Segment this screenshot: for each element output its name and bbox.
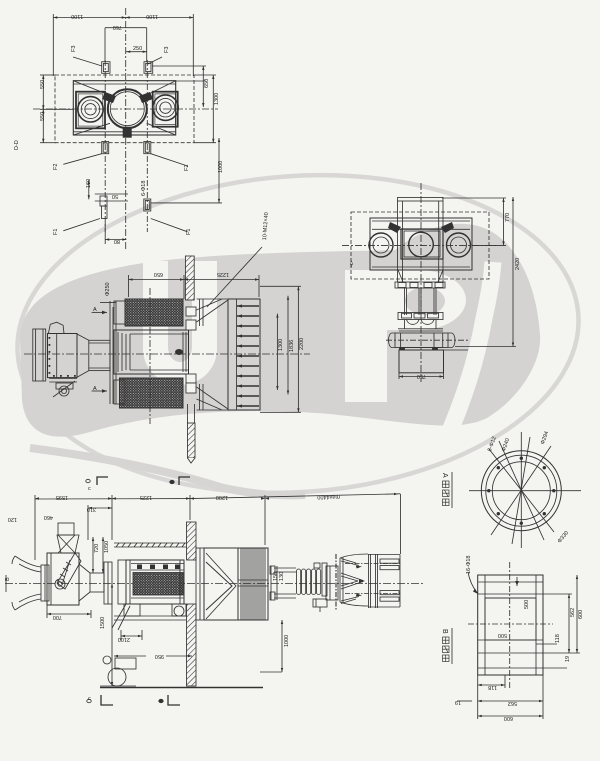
svg-text:1050: 1050	[104, 541, 110, 553]
svg-text:600: 600	[578, 610, 584, 619]
svg-text:760: 760	[113, 24, 122, 30]
svg-text:19: 19	[565, 656, 571, 662]
svg-text:1595: 1595	[56, 494, 68, 500]
svg-text:1200: 1200	[216, 494, 228, 500]
svg-text:500: 500	[498, 632, 507, 638]
svg-text:1300: 1300	[214, 93, 220, 105]
svg-text:50: 50	[112, 193, 118, 199]
svg-text:F2: F2	[53, 164, 59, 170]
svg-text:1225: 1225	[217, 271, 229, 277]
svg-text:2200: 2200	[299, 338, 305, 350]
svg-text:650: 650	[154, 271, 163, 277]
svg-text:770: 770	[505, 213, 511, 222]
svg-text:16-Φ18: 16-Φ18	[466, 556, 472, 574]
svg-text:D-D: D-D	[14, 140, 20, 150]
svg-text:F1: F1	[53, 229, 59, 235]
svg-text:120: 120	[8, 516, 17, 522]
svg-text:562: 562	[570, 608, 576, 617]
svg-text:118: 118	[488, 684, 497, 690]
svg-text:1100: 1100	[146, 13, 158, 19]
svg-text:c: c	[88, 486, 91, 492]
svg-text:460: 460	[44, 514, 53, 520]
svg-text:118: 118	[555, 634, 561, 643]
svg-text:1225: 1225	[140, 494, 152, 500]
svg-text:1300: 1300	[278, 339, 284, 351]
svg-text:6-Φ18: 6-Φ18	[141, 181, 147, 196]
svg-text:Φ250: Φ250	[105, 282, 111, 296]
svg-text:600: 600	[504, 715, 513, 721]
svg-text:500: 500	[524, 600, 530, 609]
svg-text:1000: 1000	[218, 161, 224, 173]
svg-text:2420: 2420	[515, 258, 521, 270]
svg-text:2100: 2100	[118, 636, 130, 642]
svg-text:550: 550	[40, 80, 46, 89]
svg-text:F3: F3	[164, 47, 170, 53]
svg-text:250: 250	[133, 46, 142, 52]
svg-text:1000: 1000	[284, 635, 290, 647]
svg-text:B: B	[5, 577, 11, 581]
svg-text:720: 720	[94, 544, 100, 553]
svg-text:650: 650	[204, 79, 210, 88]
svg-text:1836: 1836	[289, 340, 295, 352]
svg-text:A: A	[93, 386, 97, 392]
svg-text:19: 19	[455, 699, 461, 705]
svg-text:A: A	[441, 473, 448, 478]
svg-text:80: 80	[114, 238, 120, 244]
svg-text:A: A	[93, 307, 97, 313]
svg-text:F3: F3	[71, 46, 77, 52]
svg-text:B: B	[441, 629, 448, 634]
svg-text:max4400: max4400	[317, 494, 340, 500]
svg-text:1500: 1500	[100, 617, 106, 629]
svg-text:1100: 1100	[71, 13, 83, 19]
svg-text:F1: F1	[186, 229, 192, 235]
svg-text:130: 130	[279, 572, 285, 581]
svg-text:F2: F2	[184, 165, 190, 171]
svg-text:700: 700	[53, 614, 62, 620]
svg-text:-c-: -c-	[349, 260, 355, 267]
svg-text:950: 950	[155, 653, 164, 659]
svg-text:c: c	[88, 696, 91, 702]
svg-text:562: 562	[508, 700, 517, 706]
svg-text:750: 750	[417, 373, 426, 379]
